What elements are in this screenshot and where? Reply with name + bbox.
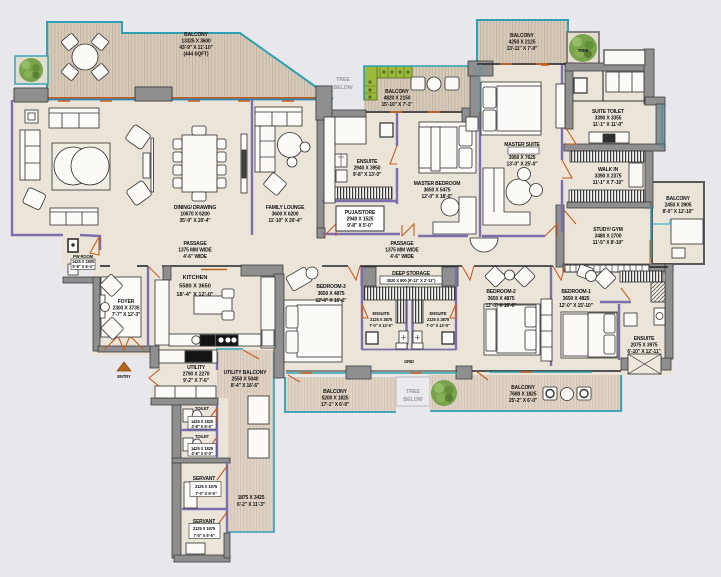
svg-text:3020 X 900 (9'-11" X 2'-11"): 3020 X 900 (9'-11" X 2'-11"): [387, 278, 437, 283]
svg-text:4'-8" X 6'-0": 4'-8" X 6'-0": [191, 424, 213, 429]
svg-text:KITCHEN: KITCHEN: [183, 275, 208, 281]
svg-text:PASSAGE: PASSAGE: [390, 241, 414, 247]
svg-text:TOILET: TOILET: [195, 406, 209, 411]
svg-text:BALCONY: BALCONY: [510, 33, 534, 39]
svg-text:BEDROOM-2: BEDROOM-2: [486, 289, 516, 295]
svg-text:MASTER SUITE: MASTER SUITE: [504, 142, 540, 148]
svg-text:18'-4" X 12'-0": 18'-4" X 12'-0": [176, 292, 214, 298]
svg-text:9'-2" X 7'-6": 9'-2" X 7'-6": [183, 378, 210, 384]
svg-text:13'-0" X 25'-0": 13'-0" X 25'-0": [507, 162, 539, 168]
svg-text:3950 X 7625: 3950 X 7625: [509, 155, 536, 161]
svg-text:ENSUITE: ENSUITE: [357, 159, 378, 165]
svg-text:WALK IN: WALK IN: [598, 167, 619, 173]
svg-text:2450 X 3905: 2450 X 3905: [665, 203, 692, 209]
svg-text:PASSAGE: PASSAGE: [183, 241, 207, 247]
svg-text:2075 X 3975: 2075 X 3975: [631, 343, 658, 349]
svg-text:1375 MM WIDE: 1375 MM WIDE: [178, 248, 212, 254]
svg-text:3480 X 2700: 3480 X 2700: [595, 234, 622, 240]
svg-text:TOILET: TOILET: [195, 434, 209, 439]
svg-text:BALCONY: BALCONY: [323, 389, 347, 395]
svg-text:ENSUITE: ENSUITE: [429, 311, 446, 316]
svg-text:SERVANT: SERVANT: [193, 519, 215, 525]
svg-text:BELOW: BELOW: [333, 85, 352, 91]
svg-text:12'-0" X 16'-0": 12'-0" X 16'-0": [486, 303, 518, 309]
svg-text:DINING/ DRAWING: DINING/ DRAWING: [174, 205, 216, 211]
svg-text:12'-0" X 16'-0": 12'-0" X 16'-0": [316, 298, 348, 304]
svg-text:STUDY/ GYM: STUDY/ GYM: [593, 227, 623, 233]
svg-text:BEDROOM-1: BEDROOM-1: [561, 289, 591, 295]
svg-text:2125 X 1975: 2125 X 1975: [195, 484, 218, 489]
svg-text:UTILITY: UTILITY: [187, 365, 206, 371]
svg-text:4'-6" WIDE: 4'-6" WIDE: [390, 254, 415, 260]
svg-text:3390 X 2375: 3390 X 2375: [595, 174, 622, 180]
svg-text:GRID: GRID: [404, 359, 414, 364]
svg-text:BALCONY: BALCONY: [666, 196, 690, 202]
svg-text:MASTER BEDROOM: MASTER BEDROOM: [414, 181, 461, 187]
svg-text:2940 X 3950: 2940 X 3950: [354, 166, 381, 172]
svg-text:11'-5" X 8'-10": 11'-5" X 8'-10": [593, 240, 625, 246]
svg-text:FAMILY LOUNGE: FAMILY LOUNGE: [266, 205, 305, 211]
svg-text:TREE: TREE: [578, 48, 589, 53]
svg-text:12'-0" X 15'-10": 12'-0" X 15'-10": [559, 303, 593, 309]
svg-text:10670 X 6200: 10670 X 6200: [180, 212, 210, 218]
svg-text:BELOW: BELOW: [403, 397, 422, 403]
svg-text:6'-10" X 12'-11": 6'-10" X 12'-11": [627, 349, 661, 355]
svg-text:15'-10" X 7'-1": 15'-10" X 7'-1": [382, 102, 414, 108]
svg-text:2790 X 2270: 2790 X 2270: [183, 372, 210, 378]
svg-text:12'-0" X 18'-0": 12'-0" X 18'-0": [422, 194, 454, 200]
svg-text:3390 X 3355: 3390 X 3355: [595, 116, 622, 122]
svg-text:ENSUITE: ENSUITE: [372, 311, 389, 316]
svg-text:TREE: TREE: [406, 389, 420, 395]
svg-text:BALCONY: BALCONY: [511, 385, 535, 391]
svg-text:PUJA/STORE: PUJA/STORE: [345, 210, 376, 216]
svg-text:4'-6" WIDE: 4'-6" WIDE: [183, 254, 208, 260]
svg-text:2300 X 3735: 2300 X 3735: [113, 306, 140, 312]
svg-text:4820 X 2150: 4820 X 2150: [384, 96, 411, 102]
svg-text:8'-0" X 12'-10": 8'-0" X 12'-10": [663, 209, 695, 215]
svg-text:BALCONY: BALCONY: [385, 89, 409, 95]
svg-text:7'-0" X 13'-0": 7'-0" X 13'-0": [369, 323, 393, 328]
svg-text:(444 SQFT): (444 SQFT): [184, 52, 209, 58]
svg-text:2550 X 5040: 2550 X 5040: [232, 377, 259, 383]
svg-text:2125 X 3875: 2125 X 3875: [370, 317, 393, 322]
svg-text:SUITE TOILET: SUITE TOILET: [592, 109, 624, 115]
svg-text:11'-10" X 20'-4": 11'-10" X 20'-4": [268, 218, 302, 224]
svg-text:ENTRY: ENTRY: [117, 374, 131, 379]
svg-text:1875 X 3425: 1875 X 3425: [238, 495, 265, 501]
svg-text:FOYER: FOYER: [118, 299, 135, 305]
svg-text:11'-1" X 7'-10": 11'-1" X 7'-10": [593, 180, 625, 186]
svg-text:9'-8" X 5'-0": 9'-8" X 5'-0": [347, 223, 374, 229]
svg-text:4'-8" X 6'-0": 4'-8" X 6'-0": [191, 451, 213, 456]
svg-text:5200 X 1825: 5200 X 1825: [322, 396, 349, 402]
svg-text:BALCONY: BALCONY: [184, 32, 208, 38]
svg-text:7'-0" X 6'-6": 7'-0" X 6'-6": [193, 533, 215, 538]
svg-text:25'-2" X 6'-0": 25'-2" X 6'-0": [509, 398, 538, 404]
svg-text:7680 X 1825: 7680 X 1825: [510, 392, 537, 398]
svg-text:3650 X 5475: 3650 X 5475: [424, 188, 451, 194]
svg-text:7'-0" X 13'-0": 7'-0" X 13'-0": [426, 323, 450, 328]
svg-text:17'-1" X 6'-0": 17'-1" X 6'-0": [321, 402, 350, 408]
svg-text:3650 X 4875: 3650 X 4875: [488, 296, 515, 302]
svg-text:1375 MM WIDE: 1375 MM WIDE: [385, 248, 419, 254]
svg-text:3600 X 6200: 3600 X 6200: [272, 212, 299, 218]
svg-text:7'-7" X 12'-3": 7'-7" X 12'-3": [112, 312, 141, 318]
svg-text:2125 X 3875: 2125 X 3875: [427, 317, 450, 322]
svg-text:2125 X 1975: 2125 X 1975: [193, 526, 216, 531]
svg-text:ENSUITE: ENSUITE: [634, 336, 655, 342]
svg-text:4250 X 2125: 4250 X 2125: [509, 40, 536, 46]
svg-text:UTILITY BALCONY: UTILITY BALCONY: [224, 370, 267, 376]
svg-text:SERVANT: SERVANT: [193, 476, 215, 482]
svg-text:6'-2" X 11'-3": 6'-2" X 11'-3": [237, 502, 266, 508]
svg-text:35'-0" X 20'-4": 35'-0" X 20'-4": [180, 218, 212, 224]
svg-text:DEEP STORAGE: DEEP STORAGE: [392, 271, 431, 277]
svg-text:TREE: TREE: [336, 77, 350, 83]
svg-text:5580 X 3650: 5580 X 3650: [179, 284, 211, 290]
svg-text:BEDROOM-3: BEDROOM-3: [316, 284, 346, 290]
svg-text:13'-11" X 7'-0": 13'-11" X 7'-0": [507, 46, 539, 52]
svg-text:9'-8" X 13'-0": 9'-8" X 13'-0": [353, 172, 382, 178]
svg-text:5'-8" X 6'-3": 5'-8" X 6'-3": [72, 264, 94, 269]
svg-text:3650 X 4825: 3650 X 4825: [563, 296, 590, 302]
svg-text:43'-9" X 11'-10": 43'-9" X 11'-10": [179, 45, 213, 51]
svg-text:11'-1" X 11'-0": 11'-1" X 11'-0": [593, 122, 624, 128]
svg-text:2940 X 1525: 2940 X 1525: [347, 217, 374, 223]
svg-text:7'-0" X 6'-6": 7'-0" X 6'-6": [195, 491, 217, 496]
svg-text:13325 X 3600: 13325 X 3600: [181, 39, 211, 45]
svg-text:3650 X 4875: 3650 X 4875: [318, 291, 345, 297]
svg-text:8'-4" X 16'-6": 8'-4" X 16'-6": [231, 383, 260, 389]
